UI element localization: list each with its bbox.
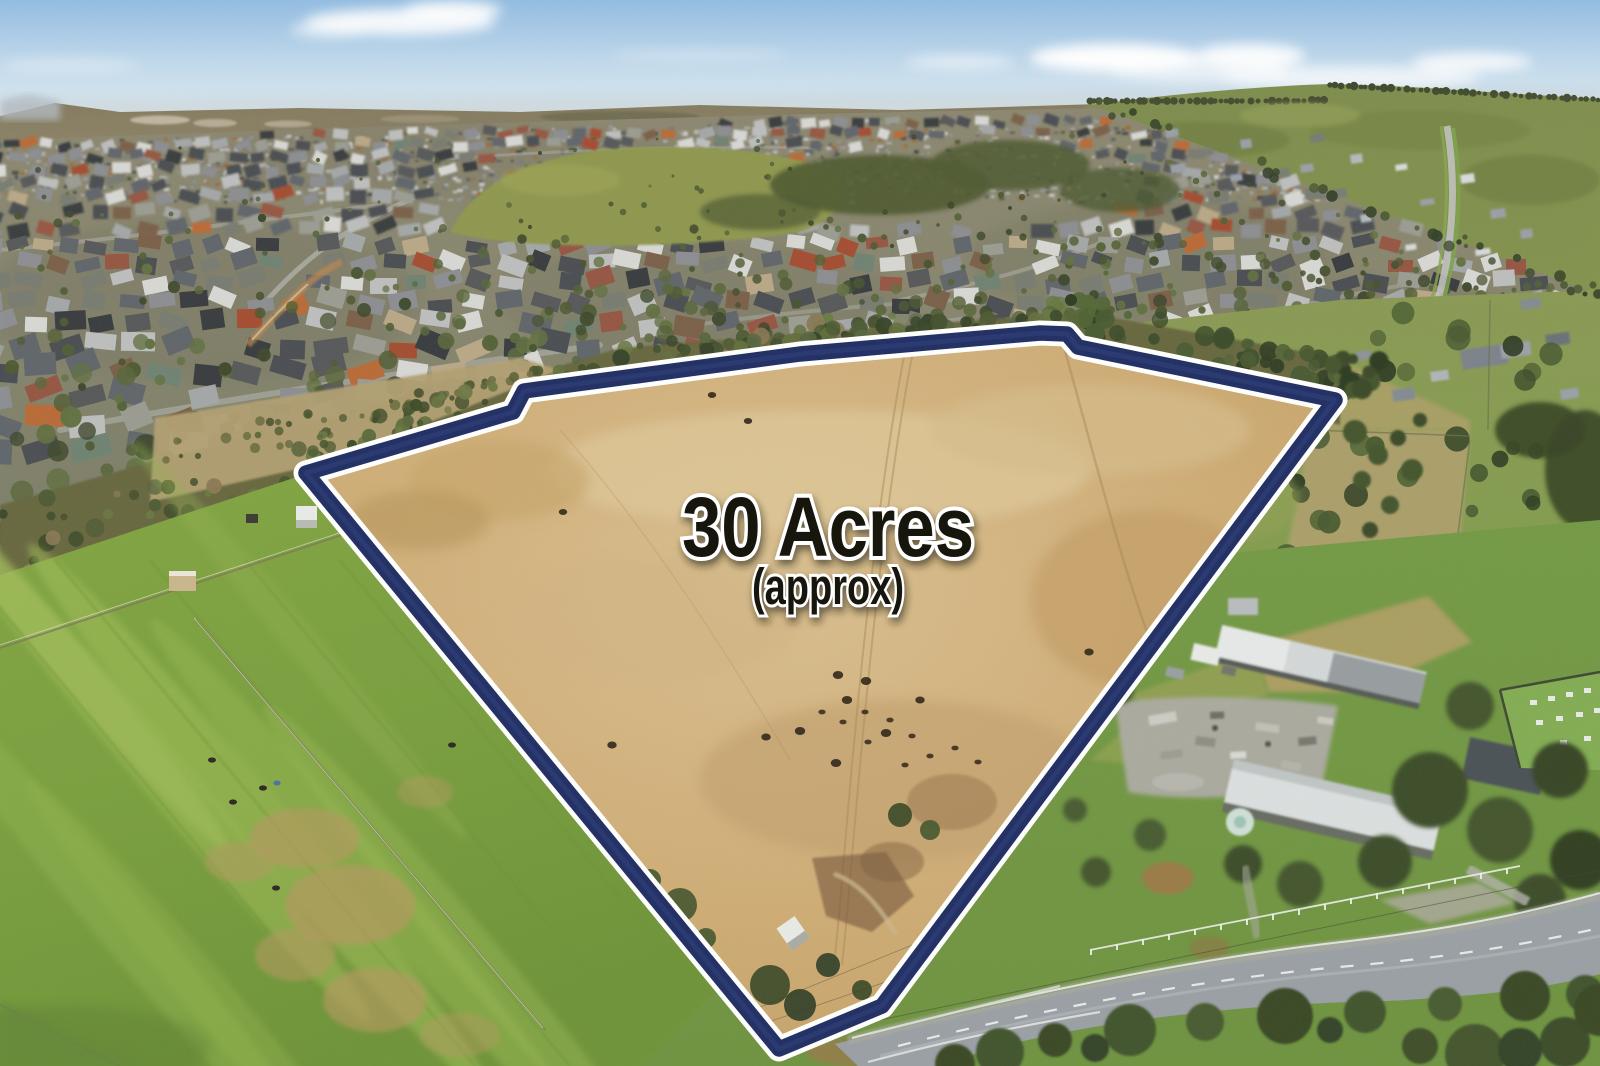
svg-text:(approx): (approx)	[752, 558, 904, 615]
